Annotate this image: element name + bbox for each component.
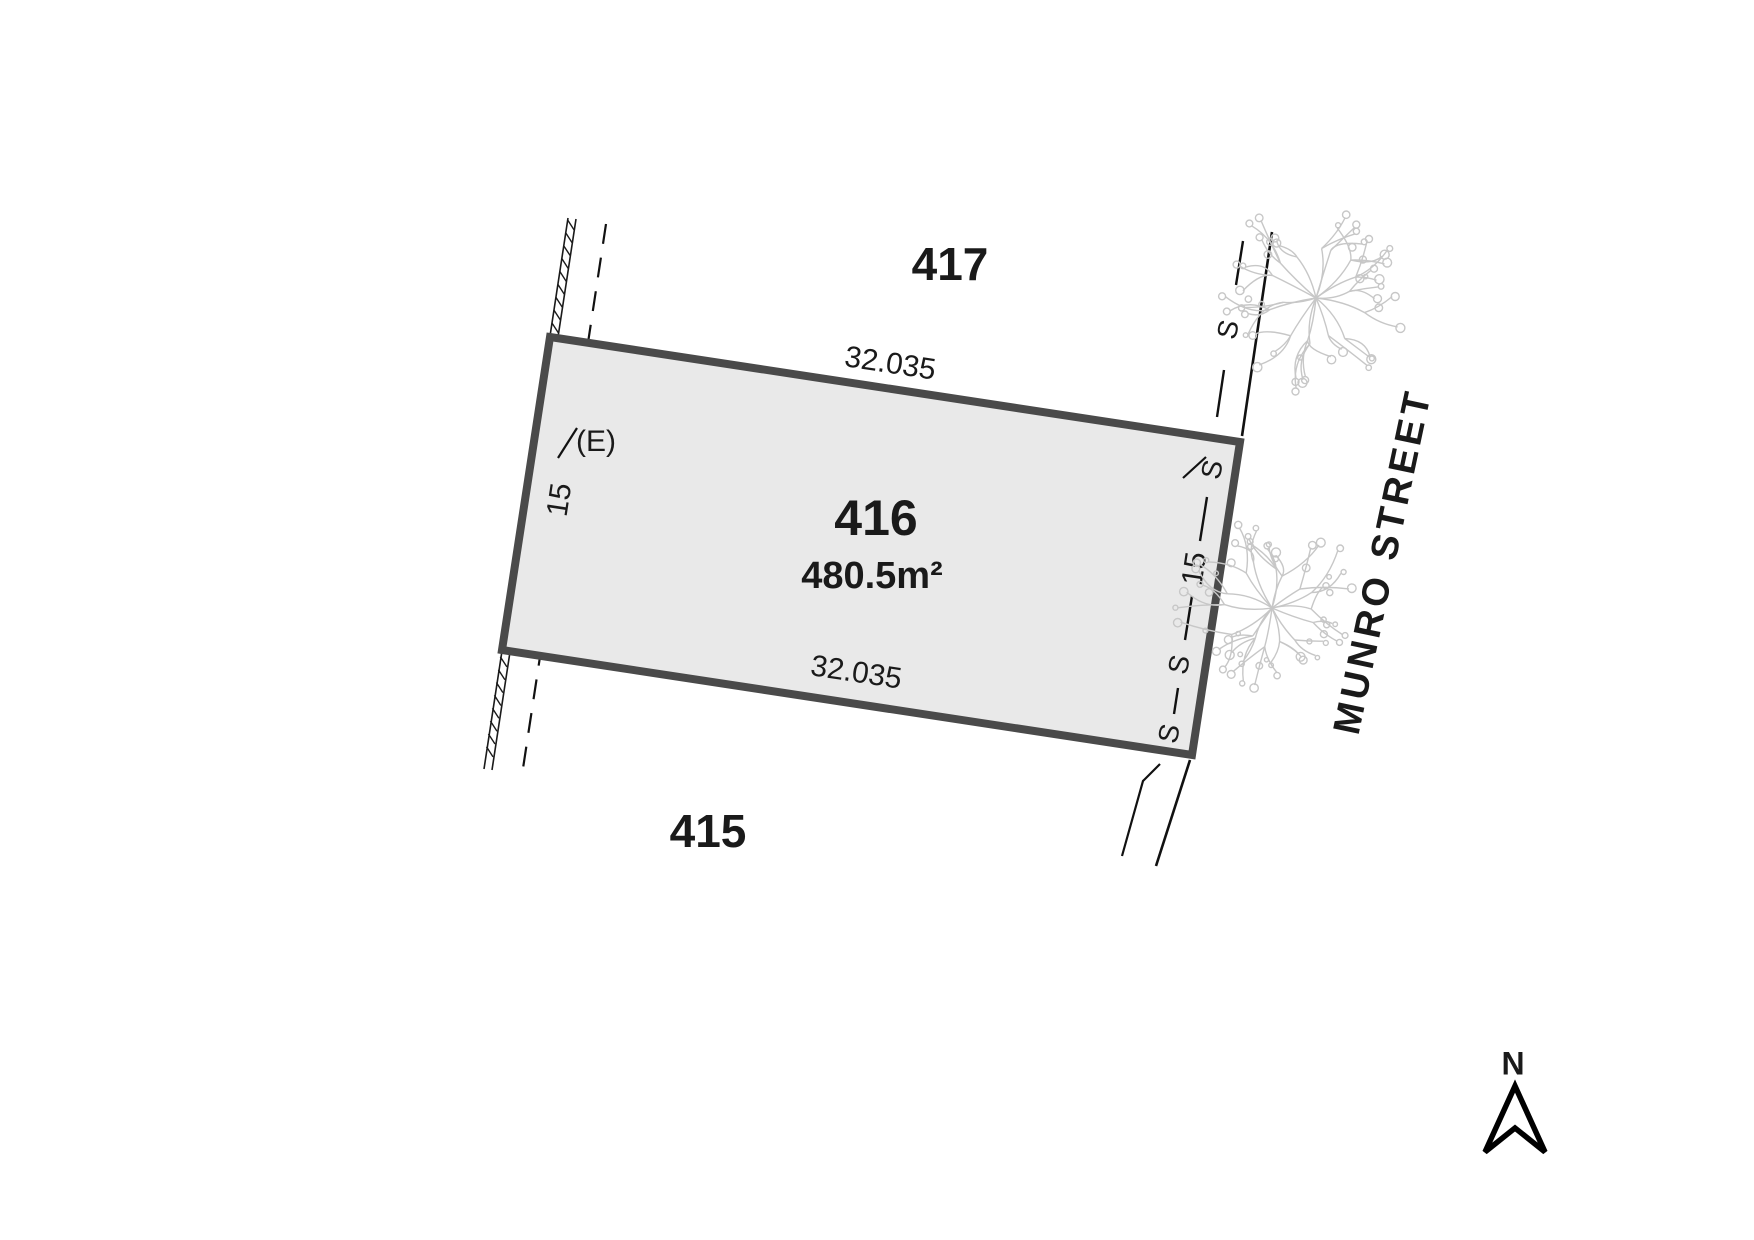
site-plan-canvas: S S 15 S S (E) 15 32.035 32.035 417 415 … xyxy=(0,0,1754,1240)
lot-416-label: 416 xyxy=(834,490,917,546)
north-arrow-icon xyxy=(1485,1086,1545,1152)
tree-icon xyxy=(1219,211,1405,395)
easement-label: (E) xyxy=(576,425,616,458)
lot-416-area: 480.5m² xyxy=(801,555,943,597)
dimension-left: 15 xyxy=(541,481,579,519)
sewer-bend-tick xyxy=(1122,764,1160,856)
survey-plan-page: S S 15 S S (E) 15 32.035 32.035 417 415 … xyxy=(0,0,1754,1240)
north-label: N xyxy=(1501,1045,1524,1081)
north-compass: N xyxy=(1485,1045,1545,1152)
lot-417-label: 417 xyxy=(912,238,989,290)
lot-415-label: 415 xyxy=(670,805,747,857)
street-name-label: MUNRO STREET xyxy=(1326,385,1440,738)
sewer-mark: S xyxy=(1211,317,1245,342)
